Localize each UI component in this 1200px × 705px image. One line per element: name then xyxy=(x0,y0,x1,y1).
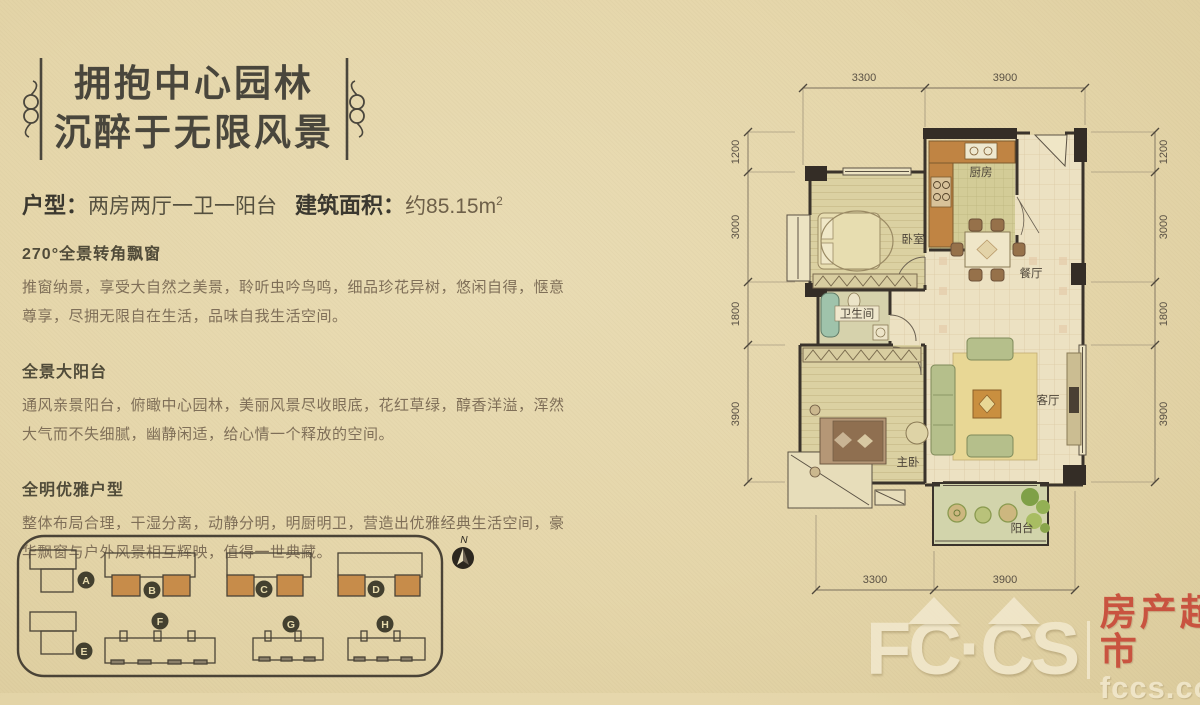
logo-domain: fccs.com xyxy=(1100,672,1200,705)
section-corner-window: 270°全景转角飘窗 推窗纳景，享受大自然之美景，聆听虫吟鸟鸣，细品珍花异树，悠… xyxy=(22,240,567,331)
dim-bottom-2: 3900 xyxy=(993,574,1017,586)
building-label-g: G xyxy=(287,619,295,631)
room-label-bath: 卫生间 xyxy=(840,307,875,321)
dim-top-1: 3300 xyxy=(852,72,876,84)
unit-area-value: 约85.15m xyxy=(405,195,496,218)
section-heading: 全景大阳台 xyxy=(22,358,567,382)
dim-left-4: 3900 xyxy=(730,402,742,426)
room-label-bedroom: 卧室 xyxy=(902,232,925,246)
building-label-b: B xyxy=(148,585,156,597)
dim-left-2: 3000 xyxy=(730,215,742,239)
north-label: N xyxy=(460,535,468,546)
dim-left-1: 1200 xyxy=(730,140,742,164)
unit-area-colon: ： xyxy=(383,193,405,218)
building-label-e: E xyxy=(80,646,87,658)
room-label-living: 客厅 xyxy=(1037,393,1060,407)
fccs-logo-wordmark: FC·CS xyxy=(866,612,1077,686)
room-label-dining: 餐厅 xyxy=(1020,266,1043,280)
room-label-master: 主卧 xyxy=(897,456,920,469)
building-label-a: A xyxy=(82,575,90,587)
house-roof-icon xyxy=(908,597,960,624)
page-title-line2: 沉醉于无限风景 xyxy=(54,109,334,158)
section-body: 通风亲景阳台，俯瞰中心园林，美丽风景尽收眼底，花红草绿，醇香洋溢，浑然大气而不失… xyxy=(22,391,567,449)
building-label-c: C xyxy=(260,584,268,596)
building-label-h: H xyxy=(381,619,389,631)
logo-chinese-name: 房产超市 xyxy=(1100,594,1200,672)
siteplan-key: A B C D E F G H N xyxy=(8,528,488,688)
logo-divider xyxy=(1087,621,1090,679)
logo-text-column: 房产超市 fccs.com xyxy=(1100,594,1200,704)
fccs-logo-text: FC·CS xyxy=(866,607,1077,690)
unit-area-sup: 2 xyxy=(496,194,503,208)
unit-type-label: 户型 xyxy=(22,193,66,218)
unit-summary: 户型：两房两厅一卫一阳台建筑面积：约85.15m2 xyxy=(22,188,503,220)
dim-top-2: 3900 xyxy=(993,72,1017,84)
headline-block: 拥抱中心园林 沉醉于无限风景 xyxy=(20,56,368,162)
section-balcony: 全景大阳台 通风亲景阳台，俯瞰中心园林，美丽风景尽收眼底，花红草绿，醇香洋溢，浑… xyxy=(22,358,567,449)
section-body: 推窗纳景，享受大自然之美景，聆听虫吟鸟鸣，细品珍花异树，悠闲自得，惬意尊享，尽拥… xyxy=(22,273,567,331)
dim-right-4: 3900 xyxy=(1158,402,1170,426)
building-label-f: F xyxy=(157,616,164,628)
flourish-left-icon xyxy=(20,56,46,162)
section-heading: 全明优雅户型 xyxy=(22,476,567,500)
room-label-balcony: 阳台 xyxy=(1011,521,1034,535)
dim-right-1: 1200 xyxy=(1158,140,1170,164)
unit-type-colon: ： xyxy=(66,193,88,218)
dim-right-3: 1800 xyxy=(1158,302,1170,326)
section-heading: 270°全景转角飘窗 xyxy=(22,240,567,264)
house-roof-icon xyxy=(988,597,1040,624)
building-label-d: D xyxy=(372,584,380,596)
dim-right-2: 3000 xyxy=(1158,215,1170,239)
page-title: 拥抱中心园林 沉醉于无限风景 xyxy=(54,60,334,158)
dim-left-3: 1800 xyxy=(730,302,742,326)
unit-area-label: 建筑面积 xyxy=(295,193,383,218)
floorplan-drawing: 3300 3900 3300 3900 1200 3000 1800 3900 … xyxy=(725,35,1200,600)
dim-bottom-1: 3300 xyxy=(863,574,887,586)
north-compass-icon: N xyxy=(452,535,474,569)
flourish-right-icon xyxy=(342,56,368,162)
fccs-watermark-logo: FC·CS 房产超市 fccs.com xyxy=(866,594,1200,704)
room-label-kitchen: 厨房 xyxy=(970,166,993,179)
unit-type-value: 两房两厅一卫一阳台 xyxy=(88,195,277,218)
page-title-line1: 拥抱中心园林 xyxy=(54,60,334,109)
